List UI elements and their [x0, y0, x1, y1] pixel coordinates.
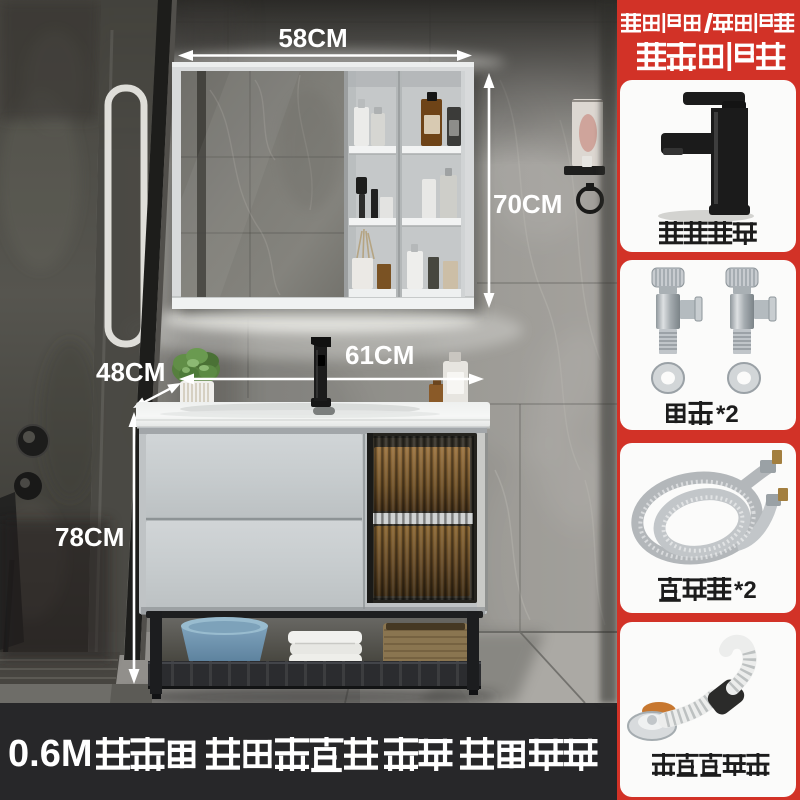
svg-text:*2: *2: [716, 401, 739, 428]
svg-text:0.6M: 0.6M: [8, 733, 92, 775]
svg-text:78CM: 78CM: [55, 522, 124, 552]
svg-text:58CM: 58CM: [278, 23, 347, 53]
svg-text:61CM: 61CM: [345, 340, 414, 370]
svg-text:70CM: 70CM: [493, 189, 562, 219]
svg-text:48CM: 48CM: [96, 357, 165, 387]
svg-text:*2: *2: [734, 577, 757, 604]
